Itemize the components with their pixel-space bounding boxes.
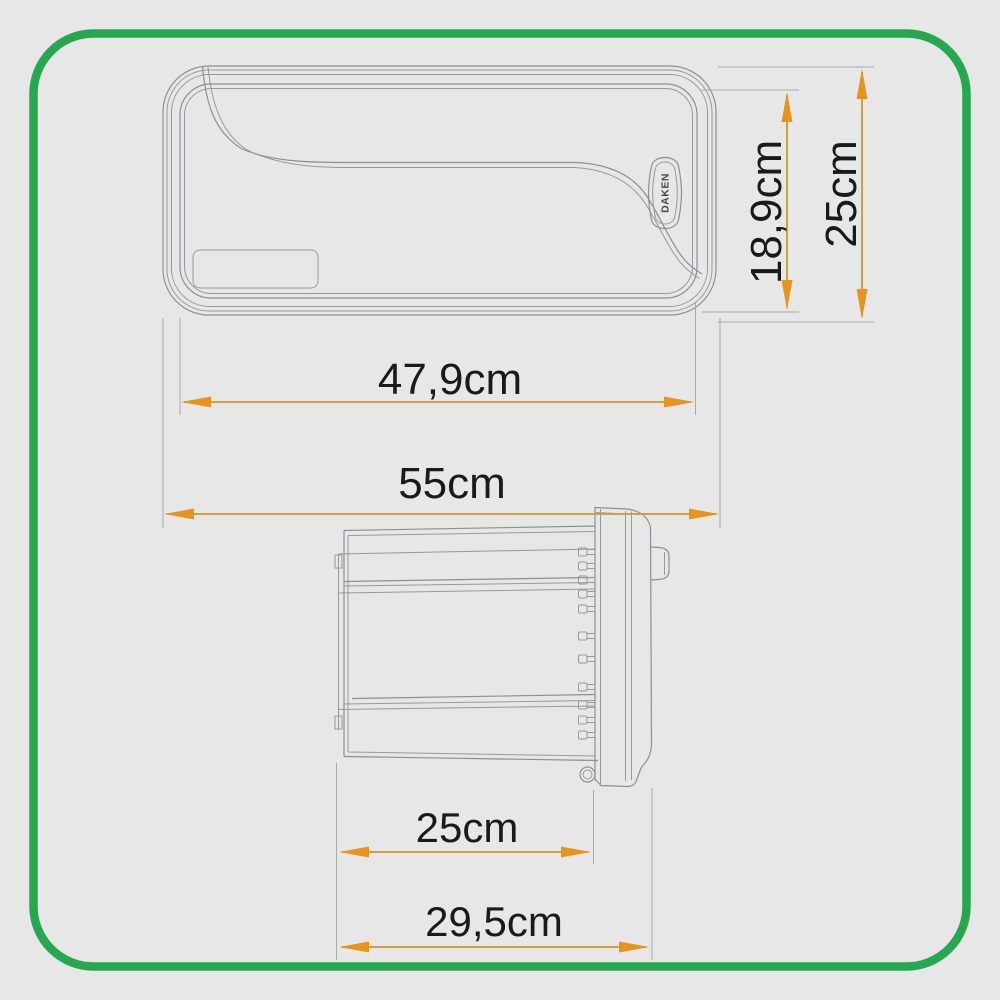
- dim-label-depth-inner: 25cm: [416, 804, 519, 851]
- dim-label-inner-height: 18,9cm: [742, 140, 791, 284]
- badge-label: DAKEN: [660, 173, 672, 213]
- diagram-canvas: DAKEN: [0, 0, 1000, 1000]
- dim-label-inner-width: 47,9cm: [378, 355, 522, 404]
- product-dimension-diagram: DAKEN: [0, 0, 1000, 1000]
- dim-label-outer-height: 25cm: [817, 140, 866, 248]
- dim-label-depth-outer: 29,5cm: [425, 898, 563, 945]
- dim-label-outer-width: 55cm: [398, 459, 506, 508]
